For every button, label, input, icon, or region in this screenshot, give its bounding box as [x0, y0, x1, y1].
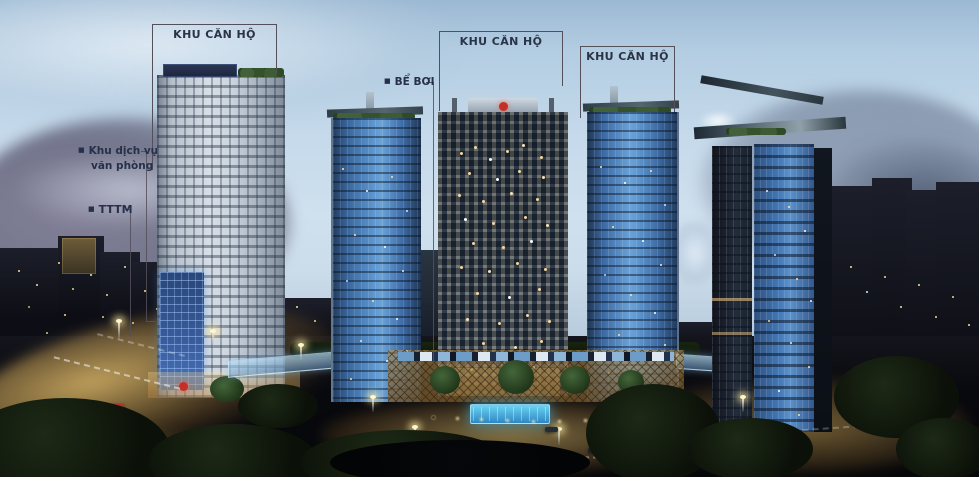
tower-e-roof-garden	[726, 128, 786, 135]
bracket-apartment-area-1: KHU CĂN HỘ	[152, 24, 277, 174]
office-label-text-2: văn phòng	[91, 160, 153, 172]
podium-tree	[498, 360, 534, 394]
bracket-top-line	[152, 24, 277, 25]
street-lamp	[212, 332, 214, 348]
podium-tree	[430, 366, 460, 394]
podium-logo-red-circle	[179, 382, 188, 391]
street-lamp	[558, 430, 560, 445]
tower-c-lit-windows	[452, 142, 455, 145]
foreground-shadow	[330, 440, 590, 477]
apartment-area-label-1: KHU CĂN HỘ	[152, 28, 277, 41]
pool-label-text: BỂ BƠI	[395, 76, 435, 88]
dark-car	[545, 427, 558, 432]
bullet-square-icon: ■	[88, 205, 95, 213]
pool-deck-lamps	[432, 416, 435, 419]
office-leader-vertical	[146, 151, 147, 322]
lit-midrise-building	[62, 238, 96, 274]
street-lamp	[742, 398, 744, 412]
tower-e-lit-band-2	[712, 332, 752, 335]
podium-tree	[560, 366, 590, 394]
street-lamp	[300, 346, 302, 361]
mall-label: ■TTTM	[88, 203, 133, 216]
street-lamp	[118, 322, 120, 340]
tower-b-lit-windows	[336, 150, 338, 152]
foreground-trees	[688, 418, 813, 477]
office-leader-nub	[146, 321, 158, 322]
foreground-trees	[238, 384, 318, 428]
palm-trees-lit	[210, 376, 244, 402]
street-lamp	[372, 398, 374, 412]
apartment-area-label-3: KHU CĂN HỘ	[580, 50, 675, 63]
foreground-trees	[896, 418, 979, 477]
mall-label-text: TTTM	[99, 203, 133, 216]
tower-e-blue-slab	[754, 144, 814, 432]
bracket-apartment-area-2: KHU CĂN HỘ	[439, 31, 563, 116]
tower-d-lit-windows	[592, 146, 594, 148]
bracket-top-line	[439, 31, 563, 32]
pool-lane-lines	[473, 407, 547, 421]
mall-leader-vertical	[130, 209, 131, 337]
apartment-area-label-2: KHU CĂN HỘ	[439, 35, 563, 48]
bullet-square-icon: ■	[78, 146, 85, 154]
office-label-text-1: Khu dịch vụ	[89, 145, 159, 157]
tower-e-dark-slab	[712, 146, 752, 432]
masterplan-rendering: KHU CĂN HỘ KHU CĂN HỘ KHU CĂN HỘ ■BỂ BƠI…	[0, 0, 979, 477]
tower-e-lit-band-1	[712, 298, 752, 301]
tower-e-edge-strip	[814, 148, 832, 432]
city-lights-left	[6, 244, 8, 246]
pool-label: ■BỂ BƠI	[384, 76, 435, 88]
office-service-label-line1: ■Khu dịch vụ	[78, 145, 158, 157]
podium-shop-signs	[398, 352, 674, 361]
swimming-pool	[470, 404, 550, 424]
city-lights-right	[840, 196, 842, 198]
bullet-square-icon: ■	[384, 77, 391, 85]
bracket-apartment-area-3: KHU CĂN HỘ	[580, 46, 675, 121]
office-service-label-line2: văn phòng	[91, 160, 153, 172]
bracket-top-line	[580, 46, 675, 47]
pool-leader-vertical	[433, 82, 434, 366]
tower-e-lit-windows	[758, 170, 760, 172]
